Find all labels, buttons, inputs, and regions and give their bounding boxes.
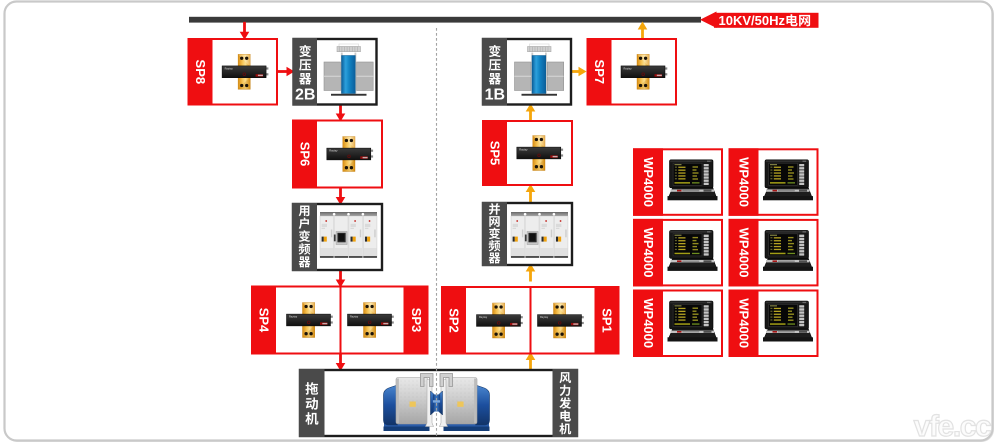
- svg-text:SP5: SP5: [488, 141, 503, 166]
- svg-text:SP8: SP8: [193, 60, 208, 85]
- svg-text:10KV/50Hz: 10KV/50Hz: [719, 13, 786, 28]
- svg-text:vfe.cc: vfe.cc: [914, 410, 991, 443]
- svg-text:WP4000: WP4000: [641, 157, 656, 207]
- svg-text:SP4: SP4: [257, 308, 272, 333]
- svg-text:WP4000: WP4000: [737, 228, 752, 278]
- svg-text:WP4000: WP4000: [737, 157, 752, 207]
- svg-text:WP4000: WP4000: [641, 228, 656, 278]
- svg-text:2B: 2B: [295, 87, 315, 104]
- svg-text:WP4000: WP4000: [737, 298, 752, 348]
- svg-text:1B: 1B: [485, 87, 505, 104]
- svg-text:SP3: SP3: [409, 308, 424, 333]
- svg-text:SP6: SP6: [298, 142, 313, 167]
- svg-text:SP2: SP2: [447, 308, 462, 333]
- svg-text:SP1: SP1: [600, 308, 615, 333]
- svg-text:SP7: SP7: [592, 60, 607, 85]
- svg-text:WP4000: WP4000: [641, 298, 656, 348]
